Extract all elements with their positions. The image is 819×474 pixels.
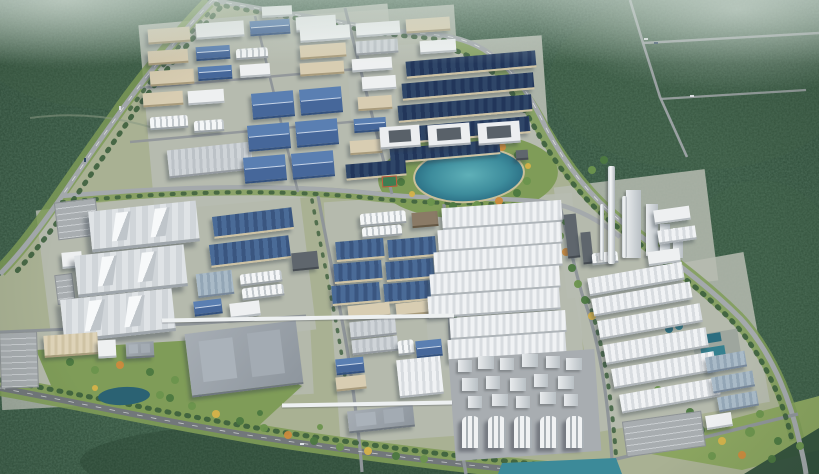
hall-navy — [345, 159, 406, 180]
roof-blue — [247, 122, 291, 152]
hall-gray — [167, 142, 253, 179]
bld-beige — [406, 16, 451, 33]
tower — [462, 378, 478, 391]
tower — [510, 378, 526, 391]
hall-gray — [351, 336, 398, 356]
bld-white — [705, 412, 733, 430]
office — [379, 125, 420, 150]
bld-bluegray — [711, 370, 755, 393]
col-cluster — [540, 416, 558, 448]
bld-beige — [300, 60, 345, 76]
hall-white — [396, 356, 444, 398]
bld-white — [196, 20, 245, 39]
tower — [534, 374, 548, 387]
tower — [500, 358, 514, 370]
col-cluster — [566, 416, 584, 448]
col-cluster — [462, 416, 480, 448]
roof-blue — [291, 150, 335, 180]
pipe — [282, 401, 452, 408]
tower — [492, 394, 508, 406]
bld-beige — [335, 374, 366, 391]
chimney — [600, 204, 604, 260]
bld-dark — [291, 251, 319, 272]
hall-steel — [212, 207, 294, 239]
tower — [478, 356, 494, 369]
silo — [194, 119, 225, 133]
bld-bluegray — [717, 391, 759, 413]
bld-beige — [358, 95, 393, 111]
hall-steel — [335, 238, 385, 262]
tower — [522, 354, 538, 367]
tower — [564, 394, 578, 406]
bld-beige — [148, 49, 189, 66]
bld-beige — [350, 139, 383, 155]
buildings-layer — [0, 0, 819, 474]
roof-blue — [251, 90, 295, 120]
hall-steel — [385, 258, 435, 282]
tower — [558, 376, 574, 389]
roof-blue — [250, 19, 291, 37]
bld-dark — [516, 150, 529, 161]
tower — [540, 392, 556, 404]
hall-beige — [43, 332, 98, 358]
bld-beige — [148, 27, 191, 45]
tower — [546, 356, 560, 368]
hall-steel — [387, 236, 437, 260]
bld-white — [188, 89, 225, 105]
silo — [241, 283, 284, 300]
hall-gray — [356, 39, 399, 56]
silo — [362, 224, 403, 238]
col-cluster — [488, 416, 506, 448]
tower — [486, 376, 500, 389]
bld-white — [300, 24, 351, 42]
tower — [516, 396, 530, 408]
parking — [622, 411, 706, 458]
chimney — [608, 166, 615, 264]
silo — [397, 339, 414, 356]
office — [477, 121, 520, 146]
hall-steel — [209, 235, 291, 268]
roof-blue — [295, 118, 339, 148]
bld-bluegray — [196, 270, 235, 298]
tower — [566, 358, 582, 370]
bld-white — [98, 340, 117, 359]
office — [427, 123, 470, 148]
bld-grayflat — [185, 320, 304, 397]
bld-beige — [300, 42, 347, 59]
chimney — [622, 196, 627, 258]
roof-blue — [335, 357, 365, 376]
roof-blue — [193, 298, 223, 316]
aerial-industrial-park-render: Aerial 3D rendering of an industrial par… — [0, 0, 819, 474]
tower — [626, 190, 641, 258]
parking — [0, 331, 39, 388]
roof-blue — [196, 45, 231, 61]
bld-white — [420, 39, 457, 54]
tower — [458, 360, 472, 372]
court — [382, 175, 398, 187]
bld-white — [262, 5, 293, 18]
bld-brown — [411, 211, 438, 228]
bld-white — [362, 75, 397, 91]
roof-blue — [299, 86, 343, 116]
bld-white — [653, 206, 691, 225]
bld-grayflat — [126, 341, 155, 358]
silo — [236, 47, 269, 60]
bld-dark — [564, 213, 581, 258]
roof-blue — [243, 154, 287, 184]
bld-white — [356, 20, 401, 37]
bld-beige — [150, 68, 195, 86]
roof-blue — [198, 65, 233, 81]
col-cluster — [514, 416, 532, 448]
bld-white — [240, 63, 271, 78]
silo — [150, 115, 189, 131]
bld-white — [352, 57, 393, 73]
tower — [468, 396, 482, 408]
hall-steel — [333, 260, 383, 284]
bld-beige — [143, 91, 184, 108]
bld-grayflat — [347, 405, 415, 434]
